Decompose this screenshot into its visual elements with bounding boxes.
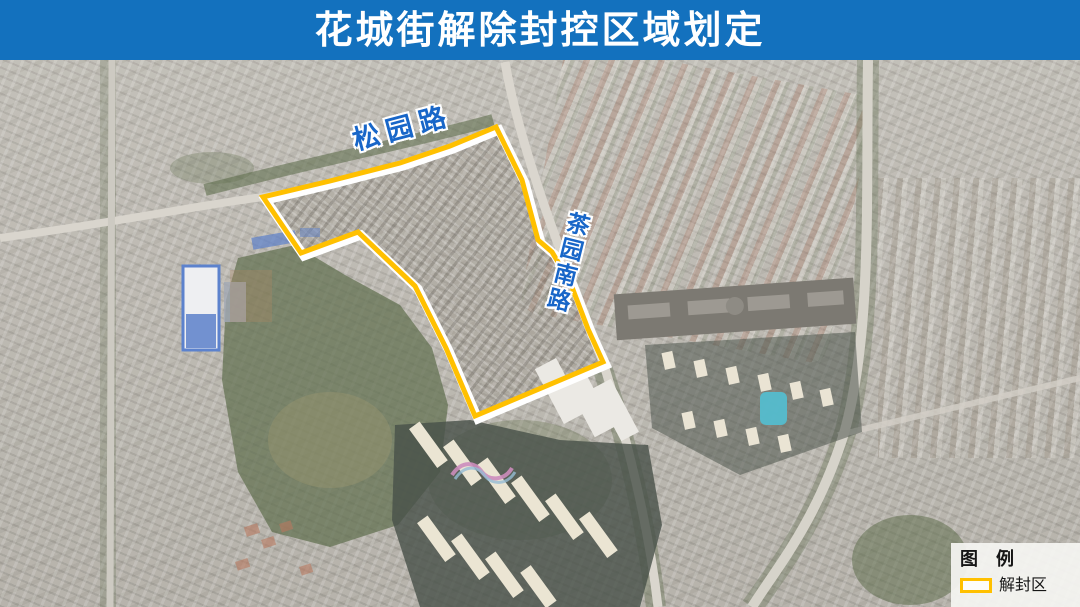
map-legend: 图 例 解封区 (951, 543, 1080, 607)
unsealed-zone-swatch-icon (960, 578, 992, 593)
title-banner: 花城街解除封控区域划定 (0, 0, 1080, 60)
map-texture (0, 60, 1080, 607)
legend-item-label: 解封区 (999, 577, 1047, 593)
page-title: 花城街解除封控区域划定 (314, 11, 765, 49)
slide: 花城街解除封控区域划定 (0, 0, 1080, 607)
legend-item-unsealed-zone: 解封区 (960, 577, 1074, 593)
satellite-map: 松园路 茶园南路 图 例 解封区 (0, 60, 1080, 607)
legend-title: 图 例 (960, 551, 1074, 569)
